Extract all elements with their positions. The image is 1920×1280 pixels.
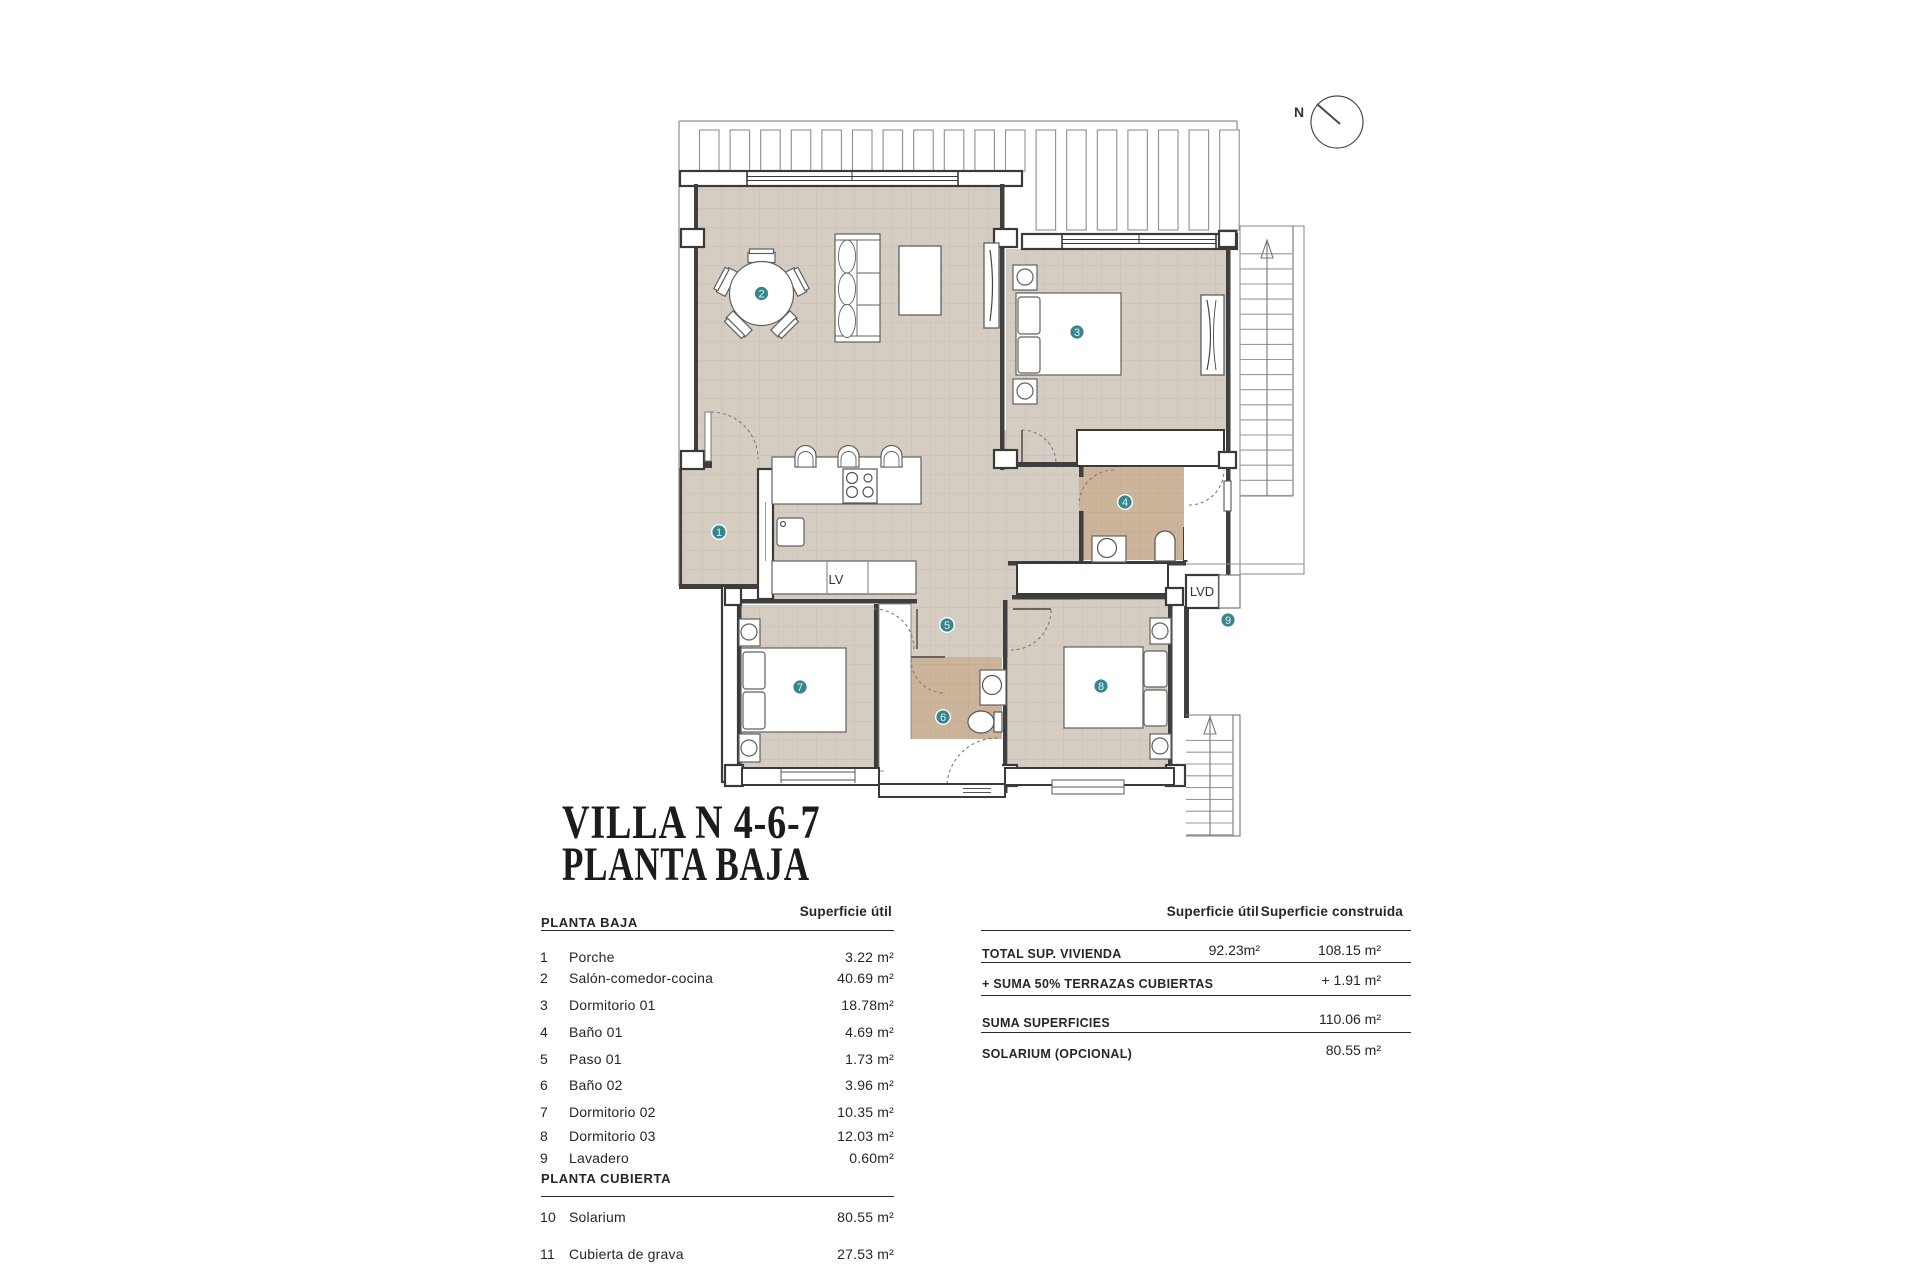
svg-text:6: 6 [940,712,946,724]
svg-text:5: 5 [944,620,950,632]
svg-text:2: 2 [758,289,764,301]
svg-text:LVD: LVD [1190,584,1214,599]
svg-text:3: 3 [1074,327,1080,339]
svg-text:4: 4 [1122,497,1128,509]
svg-text:N: N [1294,104,1304,120]
svg-text:LV: LV [829,572,844,587]
svg-text:7: 7 [797,682,803,694]
svg-text:8: 8 [1098,681,1104,693]
svg-text:9: 9 [1225,615,1231,627]
svg-text:1: 1 [716,527,722,539]
